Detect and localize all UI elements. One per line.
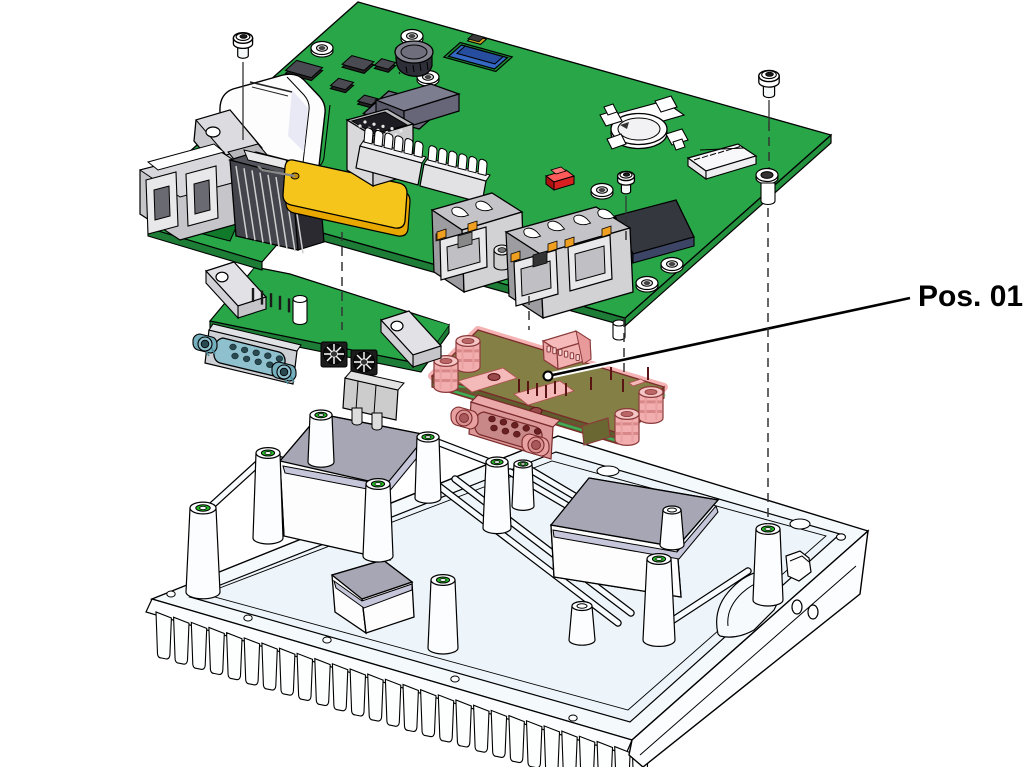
- svg-text:Pos. 01: Pos. 01: [918, 280, 1023, 313]
